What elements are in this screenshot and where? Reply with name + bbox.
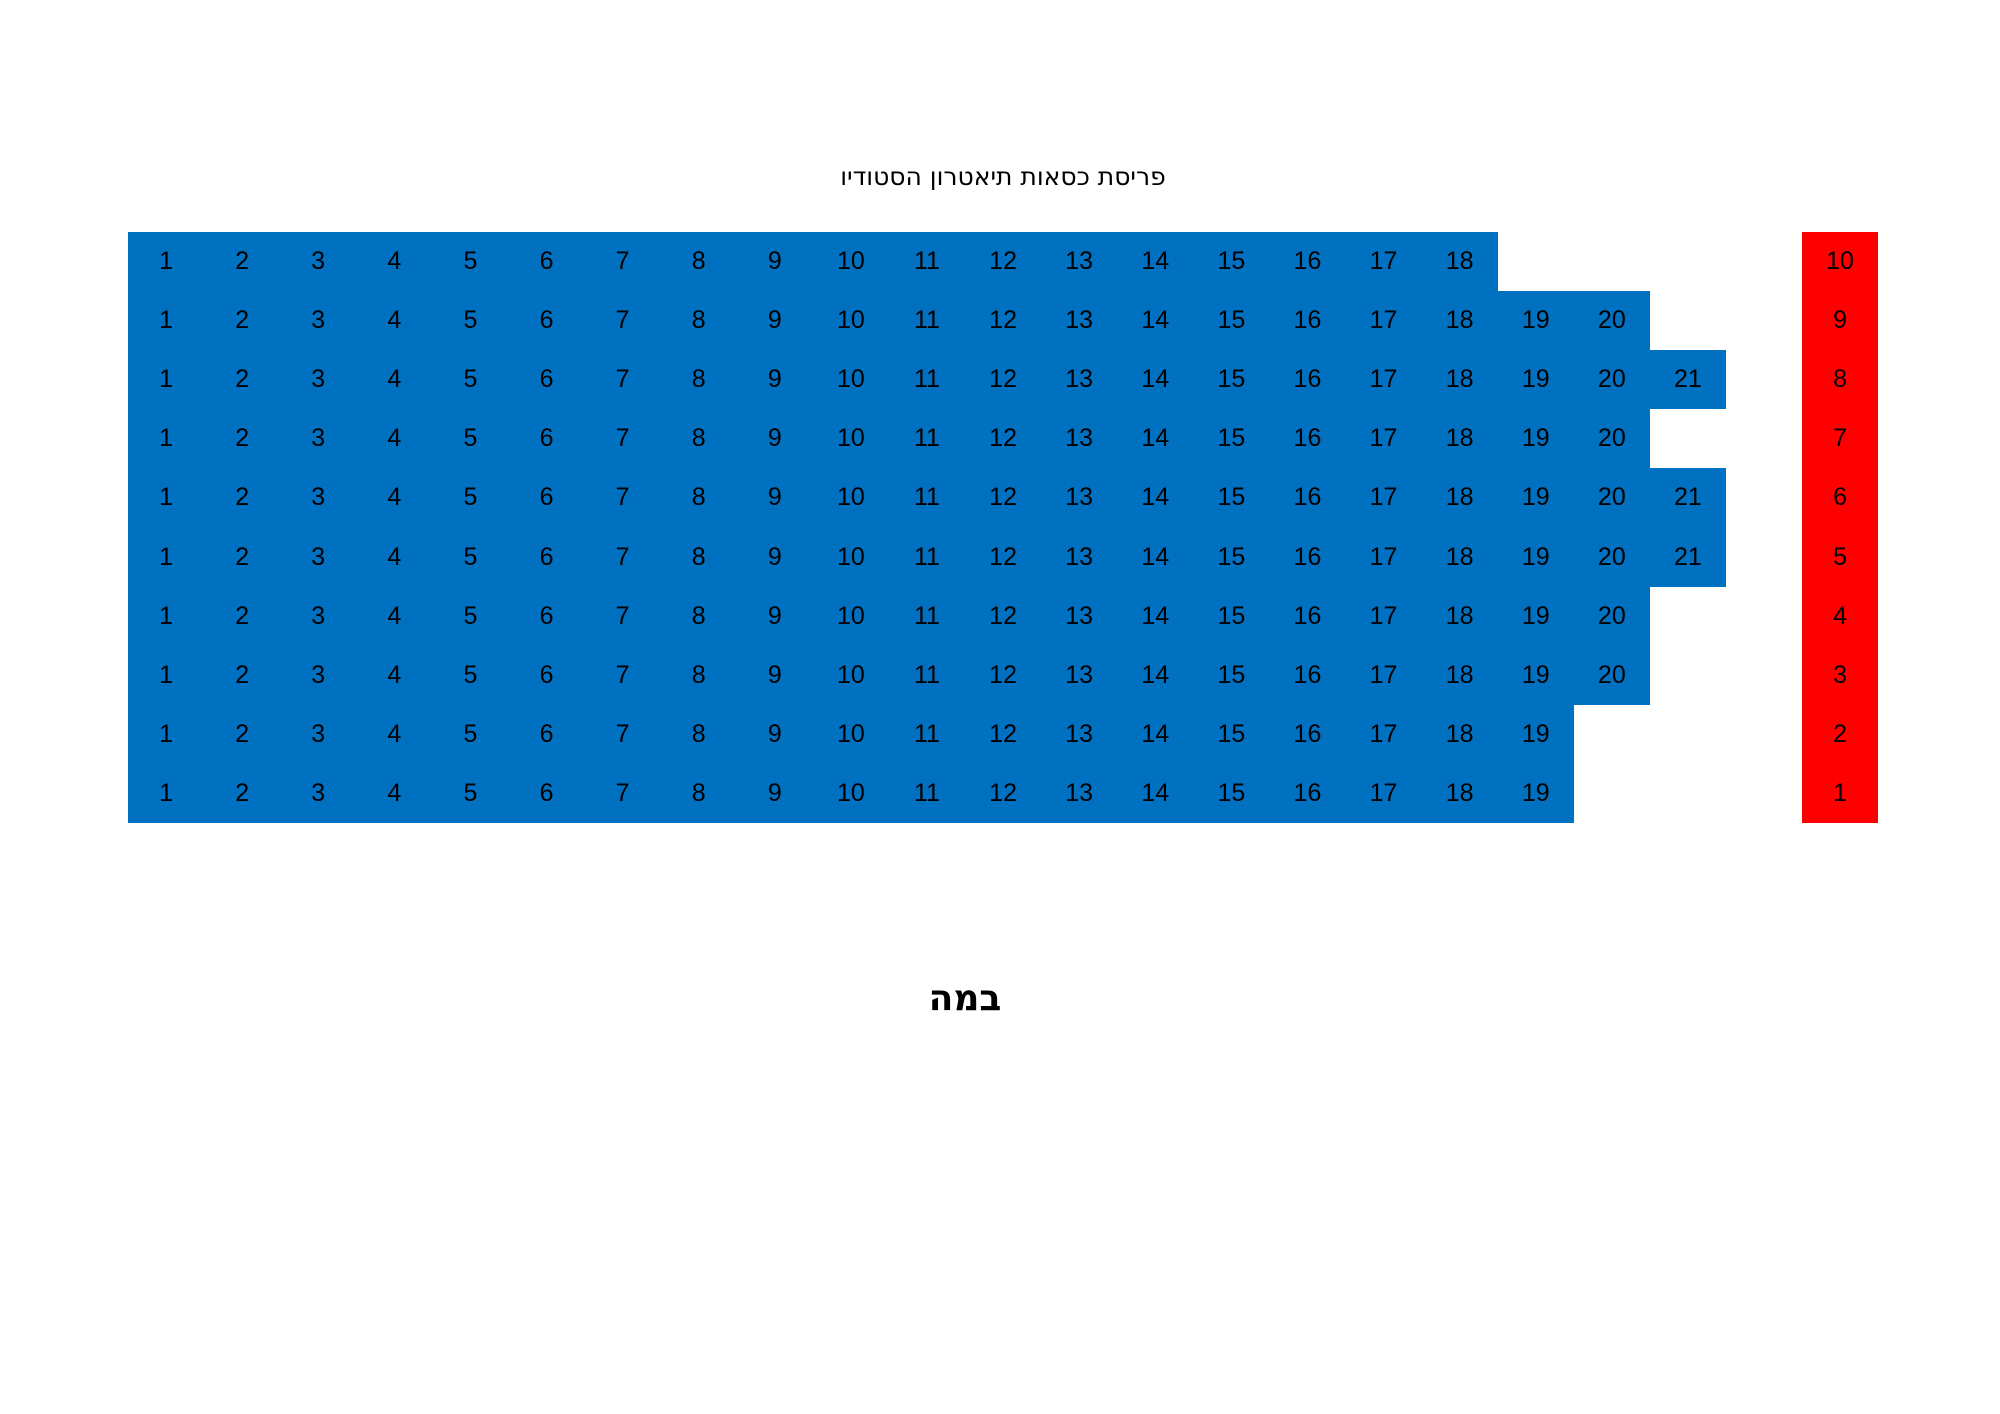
seat-number: 16 (1294, 661, 1322, 690)
seat-number: 14 (1141, 365, 1169, 394)
seat-number: 4 (387, 483, 401, 512)
seat: 11 (889, 527, 965, 586)
seat: 9 (737, 646, 813, 705)
seat-number: 9 (768, 365, 782, 394)
seat: 15 (1193, 587, 1269, 646)
seat: 4 (356, 646, 432, 705)
seat: 2 (204, 764, 280, 823)
seat: 1 (128, 468, 204, 527)
seat-number: 19 (1522, 779, 1550, 808)
seat-number: 13 (1065, 483, 1093, 512)
seat: 18 (1422, 646, 1498, 705)
seat-number: 2 (235, 247, 249, 276)
seat-number: 17 (1370, 661, 1398, 690)
seat-number: 16 (1294, 365, 1322, 394)
seat: 9 (737, 527, 813, 586)
seat: 19 (1498, 764, 1574, 823)
seat-number: 3 (311, 424, 325, 453)
seat-number: 10 (837, 306, 865, 335)
seat-number: 4 (387, 306, 401, 335)
row-label: 6 (1802, 468, 1878, 527)
seat: 16 (1269, 527, 1345, 586)
seat: 5 (432, 409, 508, 468)
seat-number: 20 (1598, 306, 1626, 335)
seat-number: 4 (387, 602, 401, 631)
seat: 19 (1498, 291, 1574, 350)
seat: 13 (1041, 527, 1117, 586)
seat-number: 14 (1141, 661, 1169, 690)
seat-number: 8 (692, 306, 706, 335)
seat: 6 (508, 527, 584, 586)
seat-number: 16 (1294, 306, 1322, 335)
row-label-text: 5 (1833, 543, 1847, 572)
seat: 1 (128, 764, 204, 823)
seat: 12 (965, 409, 1041, 468)
seat-number: 12 (989, 306, 1017, 335)
seat: 4 (356, 764, 432, 823)
seat: 2 (204, 468, 280, 527)
seat-number: 4 (387, 661, 401, 690)
seat: 2 (204, 291, 280, 350)
seat: 3 (280, 705, 356, 764)
row-label: 1 (1802, 764, 1878, 823)
seat-number: 15 (1217, 483, 1245, 512)
seat: 17 (1346, 587, 1422, 646)
seat: 11 (889, 764, 965, 823)
seat-number: 10 (837, 543, 865, 572)
seat-number: 18 (1446, 365, 1474, 394)
seat: 17 (1346, 291, 1422, 350)
row-label-text: 9 (1833, 306, 1847, 335)
seat-number: 13 (1065, 365, 1093, 394)
seat-number: 3 (311, 365, 325, 394)
seat: 6 (508, 646, 584, 705)
seat: 12 (965, 705, 1041, 764)
seat-number: 2 (235, 543, 249, 572)
seat-number: 5 (463, 306, 477, 335)
seat: 13 (1041, 468, 1117, 527)
seat: 16 (1269, 350, 1345, 409)
seat-number: 20 (1598, 365, 1626, 394)
seat-number: 14 (1141, 247, 1169, 276)
seat: 18 (1422, 409, 1498, 468)
seat-number: 3 (311, 543, 325, 572)
seat: 5 (432, 527, 508, 586)
seat: 10 (813, 587, 889, 646)
seat-number: 12 (989, 365, 1017, 394)
seat-number: 6 (540, 602, 554, 631)
seat-number: 12 (989, 247, 1017, 276)
seat-number: 2 (235, 306, 249, 335)
seat-number: 20 (1598, 543, 1626, 572)
seat: 1 (128, 587, 204, 646)
row-label-text: 7 (1833, 424, 1847, 453)
seat-number: 7 (616, 365, 630, 394)
seat-number: 14 (1141, 306, 1169, 335)
row-label-text: 3 (1833, 661, 1847, 690)
seat: 13 (1041, 705, 1117, 764)
seat-number: 10 (837, 247, 865, 276)
seat: 14 (1117, 527, 1193, 586)
seat-number: 19 (1522, 661, 1550, 690)
seat: 7 (585, 527, 661, 586)
seat: 18 (1422, 232, 1498, 291)
seat-number: 9 (768, 543, 782, 572)
seat-number: 16 (1294, 483, 1322, 512)
seat-number: 21 (1674, 483, 1702, 512)
seat-row: 12345678910111213141516171819 (128, 764, 1726, 823)
seat-number: 7 (616, 661, 630, 690)
seat: 18 (1422, 705, 1498, 764)
seat: 8 (661, 409, 737, 468)
seat-row: 123456789101112131415161718192021 (128, 350, 1726, 409)
seat: 20 (1574, 350, 1650, 409)
seat-number: 17 (1370, 720, 1398, 749)
seat-number: 2 (235, 779, 249, 808)
seat-number: 17 (1370, 602, 1398, 631)
seat-number: 10 (837, 424, 865, 453)
seat: 4 (356, 409, 432, 468)
seat: 7 (585, 468, 661, 527)
seat: 4 (356, 291, 432, 350)
seat: 3 (280, 350, 356, 409)
seat: 5 (432, 232, 508, 291)
row-label-text: 4 (1833, 602, 1847, 631)
seat-number: 9 (768, 306, 782, 335)
seat: 1 (128, 291, 204, 350)
seat-number: 1 (159, 306, 173, 335)
seat-number: 19 (1522, 543, 1550, 572)
seat-number: 12 (989, 779, 1017, 808)
seat-number: 11 (914, 247, 940, 276)
seat: 7 (585, 587, 661, 646)
seat-number: 10 (837, 779, 865, 808)
seat-number: 13 (1065, 543, 1093, 572)
seat-number: 13 (1065, 424, 1093, 453)
seat-number: 14 (1141, 424, 1169, 453)
seat-number: 9 (768, 661, 782, 690)
seat: 1 (128, 705, 204, 764)
seat-number: 20 (1598, 483, 1626, 512)
seat: 5 (432, 350, 508, 409)
seat-number: 3 (311, 720, 325, 749)
seat: 8 (661, 646, 737, 705)
row-label-text: 2 (1833, 720, 1847, 749)
seat: 20 (1574, 291, 1650, 350)
seat: 13 (1041, 350, 1117, 409)
seat-number: 9 (768, 602, 782, 631)
seat-number: 17 (1370, 483, 1398, 512)
seat: 16 (1269, 646, 1345, 705)
seat: 10 (813, 527, 889, 586)
seat-number: 15 (1217, 365, 1245, 394)
seat-number: 3 (311, 602, 325, 631)
seat: 16 (1269, 232, 1345, 291)
seat: 6 (508, 350, 584, 409)
seat: 21 (1650, 350, 1726, 409)
seat: 2 (204, 705, 280, 764)
seat-number: 16 (1294, 720, 1322, 749)
seat: 11 (889, 409, 965, 468)
seat-number: 15 (1217, 306, 1245, 335)
seat: 12 (965, 468, 1041, 527)
seat: 13 (1041, 291, 1117, 350)
seat-number: 3 (311, 247, 325, 276)
seat: 11 (889, 705, 965, 764)
seat: 14 (1117, 705, 1193, 764)
seat: 9 (737, 587, 813, 646)
seat-number: 19 (1522, 365, 1550, 394)
seat-number: 15 (1217, 779, 1245, 808)
seat: 3 (280, 291, 356, 350)
seat: 14 (1117, 232, 1193, 291)
seat: 6 (508, 764, 584, 823)
seat-number: 5 (463, 247, 477, 276)
seat: 11 (889, 646, 965, 705)
seat: 14 (1117, 350, 1193, 409)
seat: 7 (585, 409, 661, 468)
seat: 10 (813, 764, 889, 823)
seat-number: 8 (692, 483, 706, 512)
seat: 17 (1346, 764, 1422, 823)
seat-number: 8 (692, 720, 706, 749)
seat: 4 (356, 527, 432, 586)
seat-number: 20 (1598, 424, 1626, 453)
seat: 15 (1193, 291, 1269, 350)
seat-number: 15 (1217, 424, 1245, 453)
seat-number: 15 (1217, 247, 1245, 276)
seat: 10 (813, 350, 889, 409)
seat-number: 11 (914, 720, 940, 749)
seat: 10 (813, 232, 889, 291)
seat: 20 (1574, 587, 1650, 646)
seat: 16 (1269, 291, 1345, 350)
seat: 8 (661, 468, 737, 527)
row-label: 5 (1802, 527, 1878, 586)
seat-row: 123456789101112131415161718192021 (128, 527, 1726, 586)
seat-number: 8 (692, 365, 706, 394)
seat: 14 (1117, 291, 1193, 350)
seat: 14 (1117, 646, 1193, 705)
seat: 18 (1422, 764, 1498, 823)
seat: 13 (1041, 587, 1117, 646)
seat-number: 12 (989, 483, 1017, 512)
seat-number: 17 (1370, 543, 1398, 572)
page-title: פריסת כסאות תיאטרון הסטודיו (128, 163, 1878, 191)
seat: 2 (204, 527, 280, 586)
seat: 16 (1269, 764, 1345, 823)
seat: 7 (585, 291, 661, 350)
seat: 2 (204, 232, 280, 291)
row-label: 8 (1802, 350, 1878, 409)
seat-number: 14 (1141, 602, 1169, 631)
seat-number: 8 (692, 779, 706, 808)
seat-row: 1234567891011121314151617181920 (128, 646, 1726, 705)
row-label: 4 (1802, 587, 1878, 646)
seat-number: 14 (1141, 543, 1169, 572)
seat-number: 1 (159, 247, 173, 276)
seat-number: 2 (235, 424, 249, 453)
seat: 8 (661, 527, 737, 586)
seating-chart: 1234567891011121314151617181234567891011… (128, 232, 1726, 823)
seat: 6 (508, 587, 584, 646)
seat-number: 15 (1217, 661, 1245, 690)
seat-row: 1234567891011121314151617181920 (128, 291, 1726, 350)
seat: 5 (432, 587, 508, 646)
seat: 8 (661, 350, 737, 409)
seat-number: 18 (1446, 247, 1474, 276)
seat: 6 (508, 232, 584, 291)
seat-number: 21 (1674, 365, 1702, 394)
row-label: 3 (1802, 646, 1878, 705)
seat-number: 2 (235, 483, 249, 512)
seat-number: 3 (311, 483, 325, 512)
seat: 17 (1346, 705, 1422, 764)
seat-row: 1234567891011121314151617181920 (128, 587, 1726, 646)
seat: 4 (356, 232, 432, 291)
seat: 4 (356, 705, 432, 764)
seat: 15 (1193, 409, 1269, 468)
seat: 19 (1498, 350, 1574, 409)
seat-number: 7 (616, 306, 630, 335)
seat: 14 (1117, 468, 1193, 527)
seat: 6 (508, 705, 584, 764)
row-label: 7 (1802, 409, 1878, 468)
seat-number: 6 (540, 661, 554, 690)
seat: 13 (1041, 409, 1117, 468)
seat: 16 (1269, 409, 1345, 468)
seat: 4 (356, 350, 432, 409)
seat: 11 (889, 587, 965, 646)
seat-number: 11 (914, 306, 940, 335)
seat-number: 6 (540, 365, 554, 394)
seat-number: 14 (1141, 483, 1169, 512)
seat-number: 4 (387, 424, 401, 453)
seat: 7 (585, 232, 661, 291)
seat-number: 4 (387, 365, 401, 394)
seat: 19 (1498, 409, 1574, 468)
seat: 1 (128, 409, 204, 468)
seat-number: 20 (1598, 661, 1626, 690)
seat-row: 12345678910111213141516171819 (128, 705, 1726, 764)
seat: 20 (1574, 646, 1650, 705)
seat-number: 12 (989, 720, 1017, 749)
seat: 15 (1193, 705, 1269, 764)
seat: 15 (1193, 646, 1269, 705)
seat-number: 9 (768, 779, 782, 808)
seat: 16 (1269, 705, 1345, 764)
seat-number: 8 (692, 543, 706, 572)
seat: 6 (508, 291, 584, 350)
seat: 12 (965, 291, 1041, 350)
seat-number: 4 (387, 779, 401, 808)
seat-number: 12 (989, 661, 1017, 690)
seat: 19 (1498, 646, 1574, 705)
seat-number: 16 (1294, 424, 1322, 453)
seat: 18 (1422, 527, 1498, 586)
seat: 10 (813, 705, 889, 764)
seat-number: 18 (1446, 720, 1474, 749)
seat-number: 1 (159, 424, 173, 453)
seat-number: 6 (540, 483, 554, 512)
seat: 7 (585, 350, 661, 409)
seat-number: 6 (540, 424, 554, 453)
seat: 1 (128, 232, 204, 291)
seat: 7 (585, 705, 661, 764)
seat-number: 5 (463, 779, 477, 808)
row-label-text: 6 (1833, 483, 1847, 512)
seat: 1 (128, 527, 204, 586)
seat: 2 (204, 646, 280, 705)
seat-row: 1234567891011121314151617181920 (128, 409, 1726, 468)
seat-number: 15 (1217, 543, 1245, 572)
seat-number: 18 (1446, 661, 1474, 690)
seat-number: 19 (1522, 424, 1550, 453)
seat: 5 (432, 705, 508, 764)
seat-number: 7 (616, 543, 630, 572)
seat: 11 (889, 350, 965, 409)
seat-number: 21 (1674, 543, 1702, 572)
seat: 1 (128, 646, 204, 705)
seat-number: 5 (463, 424, 477, 453)
seat-number: 16 (1294, 543, 1322, 572)
seat-number: 15 (1217, 602, 1245, 631)
seat: 17 (1346, 232, 1422, 291)
seat-number: 11 (914, 661, 940, 690)
seat: 5 (432, 646, 508, 705)
seat-number: 11 (914, 365, 940, 394)
seat-number: 3 (311, 779, 325, 808)
seat-number: 12 (989, 543, 1017, 572)
seat-number: 18 (1446, 602, 1474, 631)
seat-number: 15 (1217, 720, 1245, 749)
row-label-text: 1 (1833, 779, 1847, 808)
seat: 9 (737, 468, 813, 527)
seat-number: 17 (1370, 247, 1398, 276)
seat-number: 6 (540, 720, 554, 749)
seat-row: 123456789101112131415161718 (128, 232, 1726, 291)
seat-number: 18 (1446, 779, 1474, 808)
row-label: 2 (1802, 705, 1878, 764)
seat-number: 1 (159, 365, 173, 394)
seat-number: 1 (159, 779, 173, 808)
row-label: 9 (1802, 291, 1878, 350)
seat-number: 8 (692, 661, 706, 690)
seat: 3 (280, 409, 356, 468)
seat-number: 2 (235, 720, 249, 749)
seat-number: 6 (540, 247, 554, 276)
seat-number: 16 (1294, 247, 1322, 276)
seat-number: 10 (837, 661, 865, 690)
seat-number: 4 (387, 720, 401, 749)
seat: 5 (432, 468, 508, 527)
seat: 19 (1498, 587, 1574, 646)
seat: 20 (1574, 409, 1650, 468)
seat: 2 (204, 409, 280, 468)
seat: 9 (737, 350, 813, 409)
seat-number: 8 (692, 424, 706, 453)
seat: 21 (1650, 468, 1726, 527)
seat-number: 17 (1370, 424, 1398, 453)
seat-number: 14 (1141, 720, 1169, 749)
seat: 11 (889, 232, 965, 291)
seat-number: 7 (616, 247, 630, 276)
seat: 3 (280, 646, 356, 705)
seat: 12 (965, 350, 1041, 409)
seat: 15 (1193, 232, 1269, 291)
seat-number: 18 (1446, 306, 1474, 335)
seat-number: 3 (311, 306, 325, 335)
